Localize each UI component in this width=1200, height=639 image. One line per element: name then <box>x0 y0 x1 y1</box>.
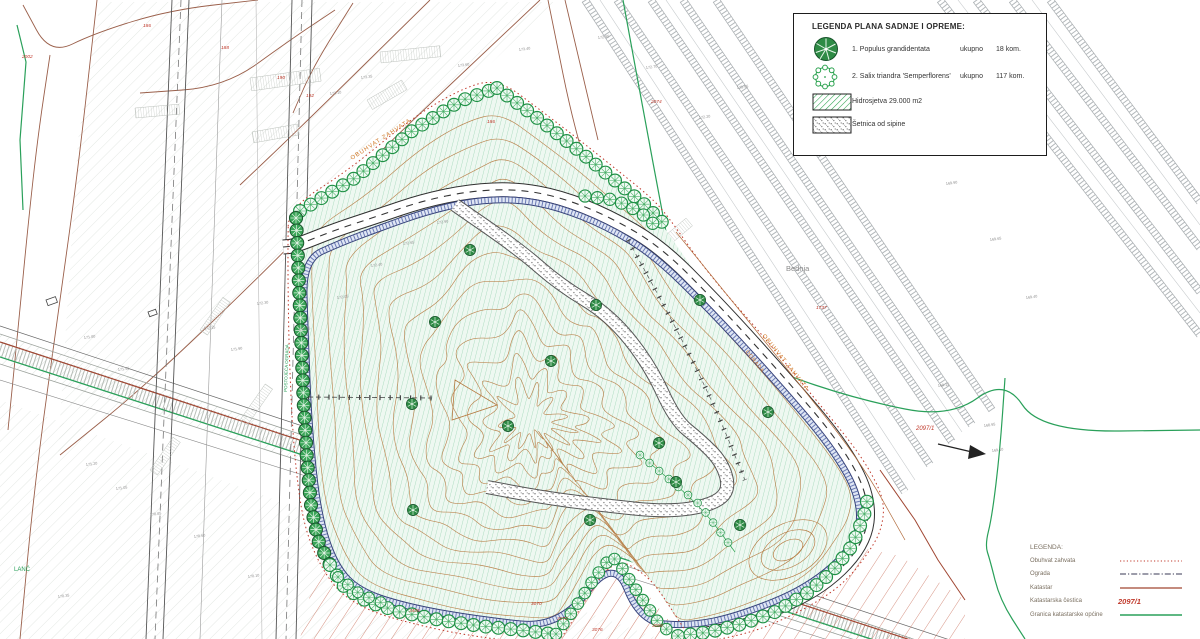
parcel-number: 3070 <box>531 601 542 607</box>
elevation-label: 171.90 <box>231 346 243 352</box>
elevation-label: 169.90 <box>946 180 958 186</box>
legend-row-katastar: Katastar <box>1030 581 1190 595</box>
place-label: LANĆ <box>14 566 31 573</box>
elevation-label: 172.70 <box>646 64 658 70</box>
parcel-number: 2074 <box>650 99 662 105</box>
parcel-number: 186 <box>487 119 495 125</box>
elevation-label: 172.20 <box>699 114 711 120</box>
parcel-number-sample: 2097/1 <box>1118 597 1141 606</box>
parcel-number: 190 <box>277 75 285 81</box>
parcel-number: 3072 <box>557 616 568 622</box>
elevation-label: 173.40 <box>519 46 531 52</box>
legend-item-label: 2. Salix triandra 'Semperflorens' <box>852 73 960 80</box>
map-legend-title: LEGENDA: <box>1030 544 1190 551</box>
legend-row-granica: Granica katastarske općine <box>1030 608 1190 622</box>
plant-legend-box: LEGENDA PLANA SADNJE I OPREME: 1. Populu… <box>793 13 1047 156</box>
elevation-label: 172.15 <box>204 325 216 331</box>
legend-qty-label: ukupno <box>960 73 996 80</box>
parcel-number: 192 <box>306 93 314 99</box>
legend-item-populus: 1. Populus grandidentata ukupno 18 kom. <box>812 36 1046 63</box>
legend-item-label: Šetnica od sipine <box>852 121 960 128</box>
legend-item-label: 1. Populus grandidentata <box>852 46 960 53</box>
legend-item-salix: 2. Salix triandra 'Semperflorens' ukupno… <box>812 63 1046 90</box>
gravel-stipple-icon <box>812 116 852 134</box>
parcel-number: 2097/1 <box>915 426 934 432</box>
elevation-label: 172.95 <box>598 34 610 40</box>
parcel-number: 186 <box>143 23 151 29</box>
parcel-number: 3076 <box>592 627 603 633</box>
parcel-number: 3068 <box>652 623 663 629</box>
legend-qty-value: 18 kom. <box>996 46 1040 53</box>
legend-qty-label: ukupno <box>960 46 996 53</box>
flow-arrow <box>938 444 986 459</box>
elevation-label: 169.40 <box>1026 294 1038 300</box>
legend-row-ograda: Ograda <box>1030 568 1190 582</box>
site-plan-drawing: BednjaLANĆOBUHVAT ZAHVATAOBUHVAT ZAHVATA… <box>0 0 1200 639</box>
river-label: Bednja <box>786 264 810 273</box>
parcel-number: 1737 <box>816 305 827 311</box>
legend-label: Katastarska čestica <box>1030 598 1118 604</box>
map-legend-box: LEGENDA: Obuhvat zahvata Ograda Katastar… <box>1030 544 1190 622</box>
legend-qty-value: 117 kom. <box>996 73 1040 80</box>
parcel-number: 2002 <box>21 54 33 60</box>
dash-dot-line-symbol <box>1118 571 1186 577</box>
elevation-label: 169.15 <box>938 382 950 388</box>
legend-label: Katastar <box>1030 585 1118 591</box>
legend-label: Obuhvat zahvata <box>1030 558 1118 564</box>
legend-item-gravel-path: Šetnica od sipine <box>812 113 1046 136</box>
elevation-label: 169.65 <box>990 236 1002 242</box>
parcel-number: 188 <box>221 45 229 51</box>
elevation-label: 169.10 <box>992 447 1004 453</box>
parcel-number: 3405 <box>409 608 420 614</box>
plant-legend-title: LEGENDA PLANA SADNJE I OPREME: <box>812 22 1046 31</box>
elevation-label: 171.95 <box>737 84 749 90</box>
legend-label: Granica katastarske općine <box>1030 612 1118 618</box>
green-solid-line-symbol <box>1118 612 1186 618</box>
elevation-label: 172.30 <box>257 300 269 306</box>
populus-tree-icon <box>812 36 852 63</box>
legend-row-obuhvat: Obuhvat zahvata <box>1030 554 1190 568</box>
legend-label: Ograda <box>1030 571 1118 577</box>
red-dotted-line-symbol <box>1118 558 1186 564</box>
legend-item-hydroseed: Hidrosjetva 29.000 m2 <box>812 90 1046 113</box>
hydroseed-hatch-icon <box>812 93 852 111</box>
legend-row-parcel: Katastarska čestica 2097/1 <box>1030 595 1190 609</box>
brown-solid-line-symbol <box>1118 585 1186 591</box>
legend-item-label: Hidrosjetva 29.000 m2 <box>852 98 960 105</box>
salix-shrub-icon <box>812 64 852 90</box>
elevation-label: 168.95 <box>984 422 996 428</box>
